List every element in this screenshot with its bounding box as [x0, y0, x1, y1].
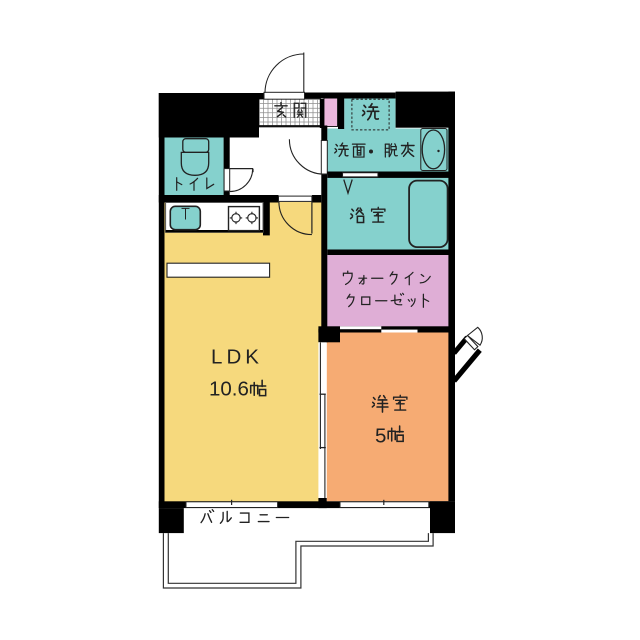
svg-text:5: 5 [375, 425, 386, 448]
svg-text:10.6: 10.6 [209, 378, 249, 401]
svg-text:LDK: LDK [211, 346, 263, 369]
